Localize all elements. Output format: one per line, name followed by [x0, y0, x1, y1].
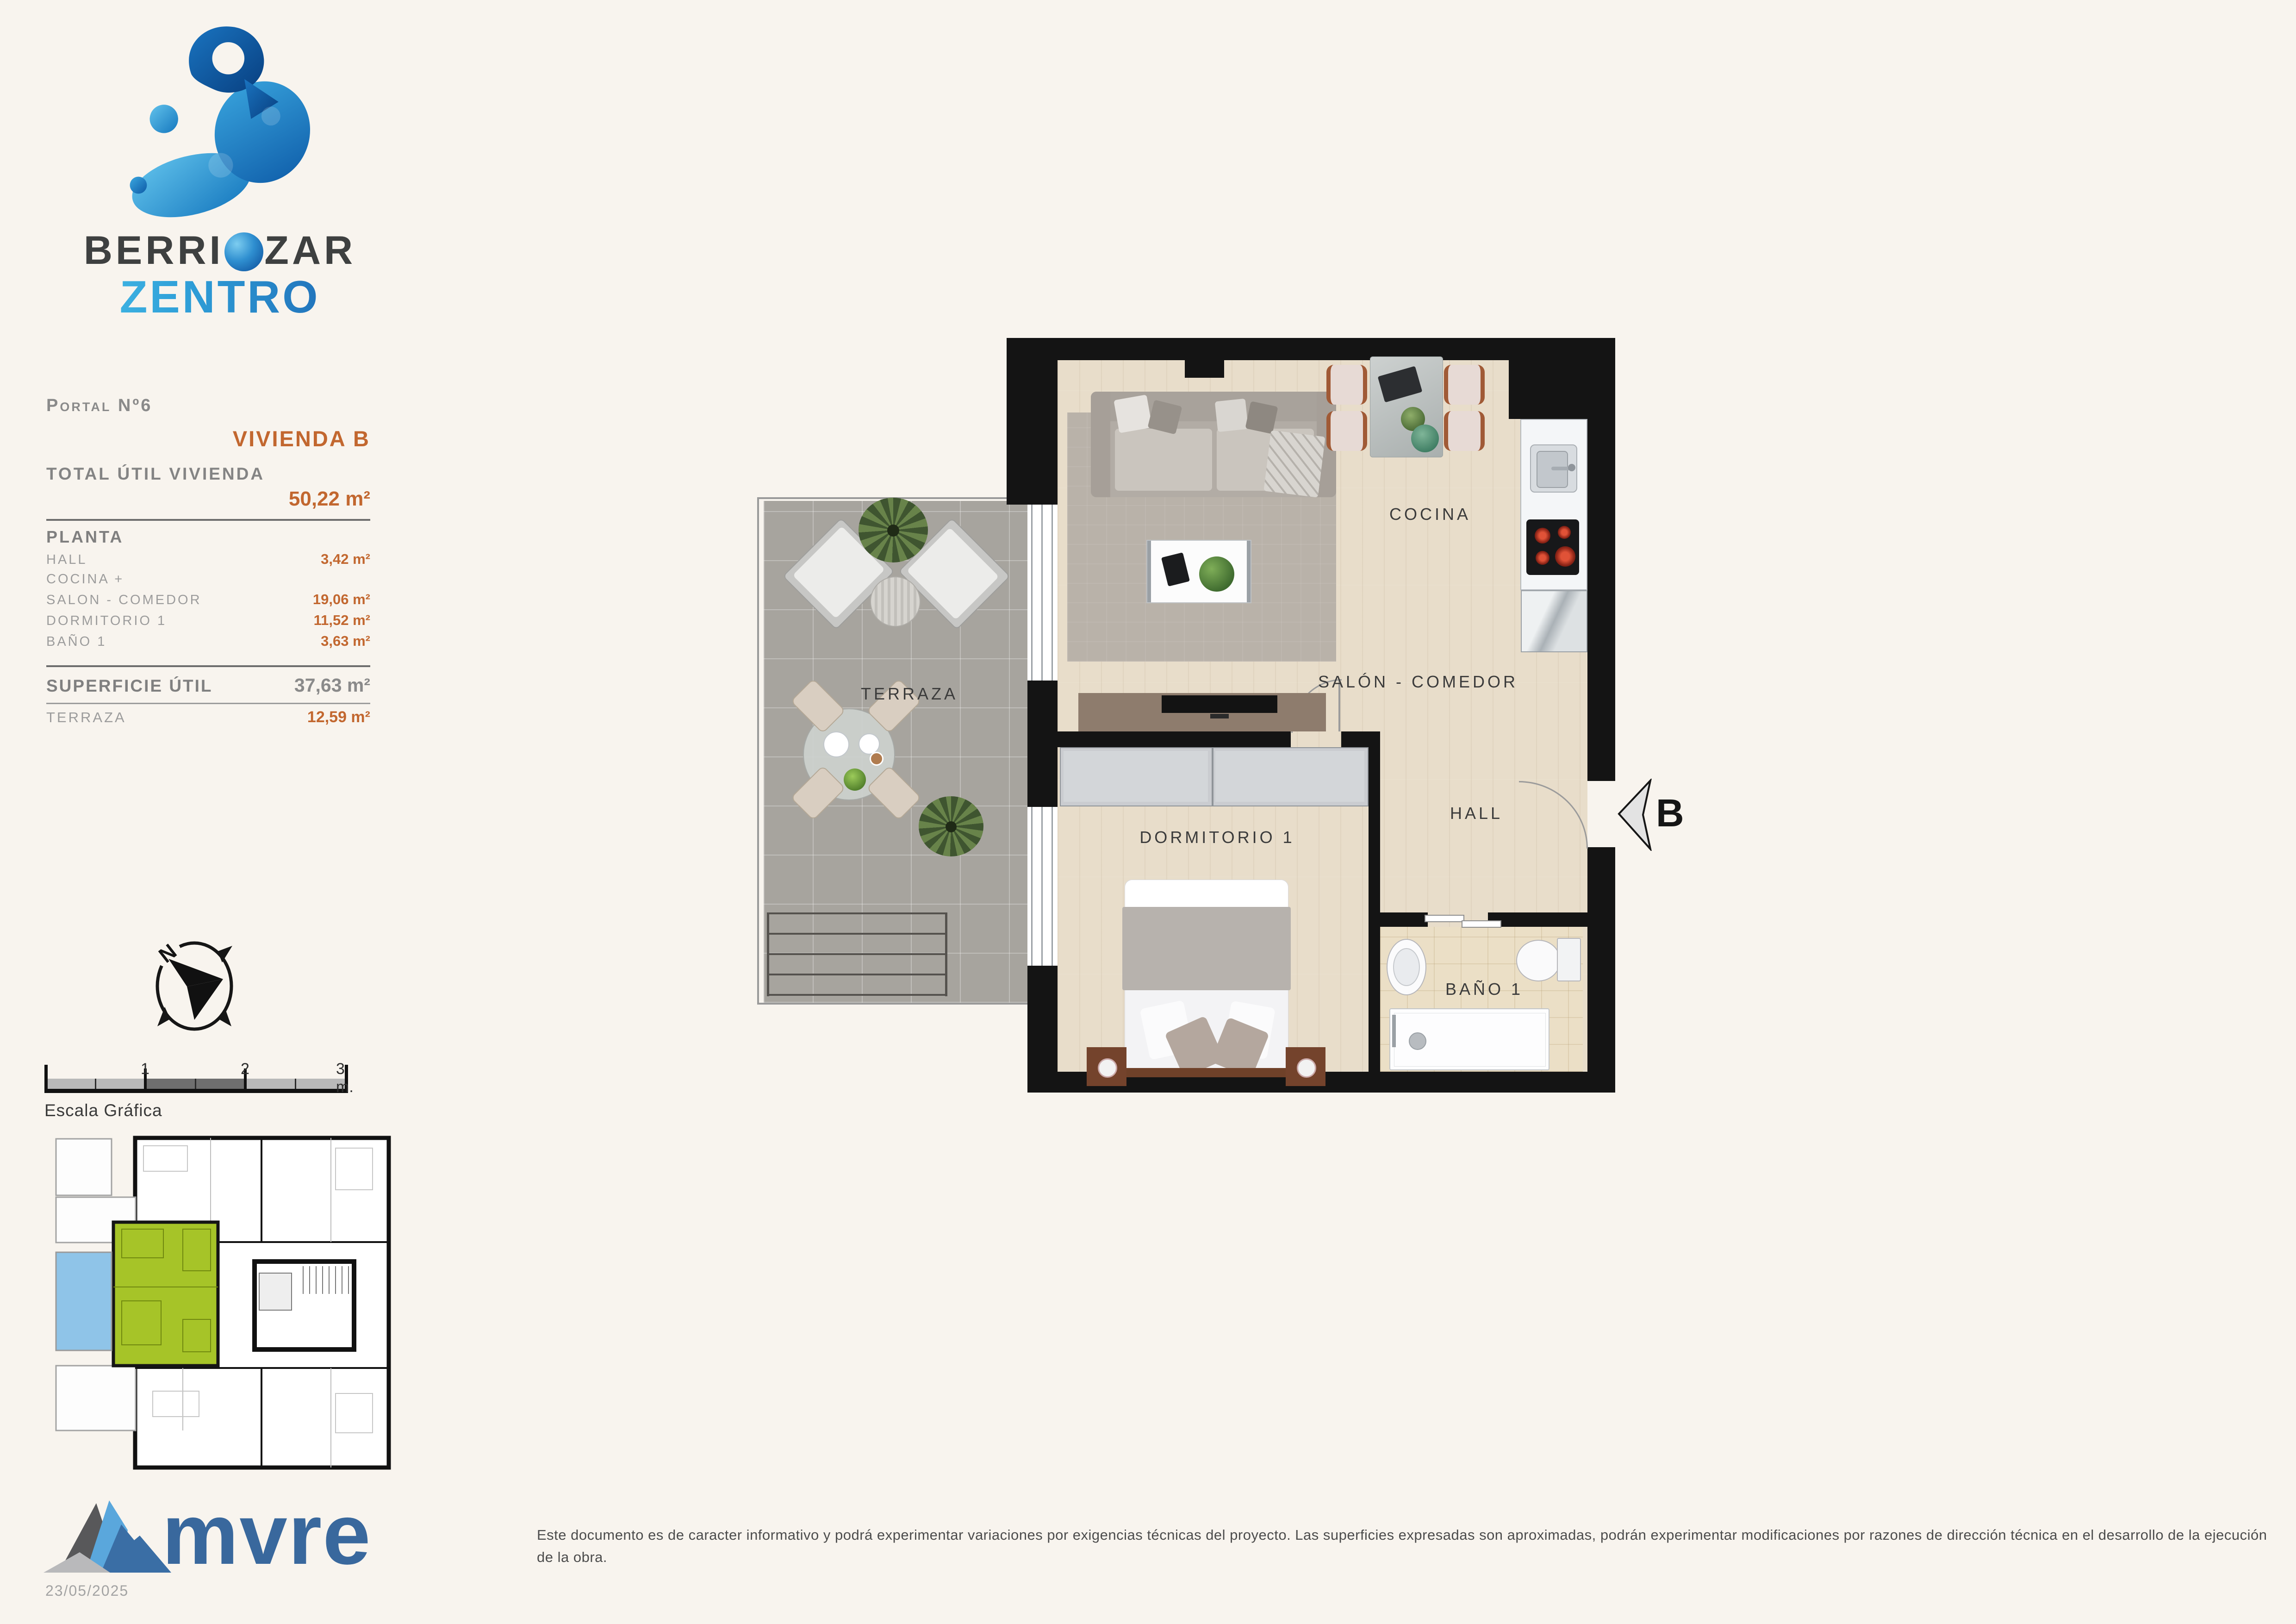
row-label: BAÑO 1: [46, 634, 106, 650]
table-plant: [1199, 556, 1234, 592]
bathroom-sliding-door: [1462, 920, 1501, 928]
wardrobe: [1060, 747, 1369, 806]
scale-label-3: 3 m.: [336, 1060, 359, 1096]
brand-splash-icon: [116, 19, 329, 227]
coffee-table-rail: [1247, 541, 1251, 602]
kitchen-sink: [1530, 444, 1577, 493]
wall: [1587, 338, 1615, 781]
entrance-chevron-icon: [1616, 779, 1653, 851]
dining-chair: [1444, 411, 1485, 451]
shower-drain: [1409, 1032, 1426, 1050]
area-row: SALON - COMEDOR19,06 m²: [46, 591, 370, 608]
terraza-value: 12,59 m²: [307, 708, 370, 726]
floorplan-sheet: BERRIZAR ZENTRO Portal Nº6 VIVIENDA B TO…: [0, 0, 2296, 1624]
shower-tray: [1389, 1008, 1549, 1070]
area-row: HALL3,42 m²: [46, 551, 370, 568]
highlighted-unit-b: [113, 1222, 218, 1366]
faucet-knob: [1568, 464, 1575, 471]
terrace-railing: [757, 1003, 1028, 1005]
divider: [46, 665, 370, 667]
row-label: SALON - COMEDOR: [46, 593, 202, 608]
bathroom-sink: [1387, 939, 1426, 995]
wall: [1380, 912, 1428, 927]
stove: [1526, 519, 1579, 575]
coffee-table: [1146, 540, 1251, 603]
brand-logo: [116, 19, 329, 227]
wall: [1058, 731, 1291, 747]
scale-tick: [44, 1065, 48, 1089]
unit-info-panel: Portal Nº6 VIVIENDA B TOTAL ÚTIL VIVIEND…: [46, 396, 370, 726]
entrance-opening: [1587, 781, 1615, 847]
wardrobe-door: [1064, 751, 1208, 802]
brand-name-post: ZAR: [264, 228, 356, 273]
entrance-letter: B: [1656, 791, 1684, 836]
window-frame-line: [1031, 807, 1033, 966]
wall: [1341, 731, 1380, 747]
tv: [1162, 695, 1277, 713]
row-value: 3,63 m²: [321, 633, 370, 650]
wall: [1027, 966, 1058, 1093]
wall: [1185, 360, 1224, 378]
divider: [46, 519, 370, 521]
window: [1027, 807, 1058, 966]
superficie-label: SUPERFICIE ÚTIL: [46, 676, 213, 696]
plant-pot: [887, 525, 899, 537]
window-frame-line: [1031, 505, 1033, 681]
toilet-tank: [1557, 938, 1581, 981]
divider: [46, 703, 370, 704]
room-label-hall: HALL: [1430, 804, 1523, 823]
nightstand-lamp: [1297, 1058, 1316, 1078]
scale-halftick: [195, 1079, 196, 1089]
coffee-cup: [870, 752, 884, 766]
terraza-row: TERRAZA12,59 m²: [46, 708, 370, 726]
nightstand-lamp: [1098, 1058, 1117, 1078]
key-plan-drawing: [44, 1134, 396, 1495]
window-frame-line: [1052, 807, 1053, 966]
dining-chair: [1326, 411, 1367, 451]
sofa: [1091, 392, 1336, 497]
nightstand: [1087, 1047, 1126, 1086]
laptop: [1378, 366, 1423, 403]
stove-burner: [1558, 526, 1571, 539]
shower-head-bar: [1392, 1015, 1396, 1047]
sofa-pillow: [1215, 399, 1249, 432]
wall: [1027, 338, 1611, 360]
brand-name: BERRIZAR: [51, 228, 389, 274]
sofa-pillow: [1114, 394, 1152, 433]
sofa-throw-blanket: [1263, 430, 1325, 497]
stove-burner: [1555, 546, 1575, 567]
bed-headboard: [1123, 1068, 1290, 1077]
row-label: DORMITORIO 1: [46, 613, 167, 629]
dining-table: [1370, 356, 1443, 457]
stove-burner: [1535, 528, 1550, 543]
wardrobe-divider: [1212, 748, 1213, 806]
scale-halftick: [95, 1079, 96, 1089]
wall: [1587, 847, 1615, 1093]
document-date: 23/05/2025: [45, 1582, 129, 1599]
area-row: DORMITORIO 111,52 m²: [46, 612, 370, 629]
room-label-salon: SALÓN - COMEDOR: [1288, 672, 1548, 692]
bed-blanket: [1122, 907, 1291, 990]
sofa-armrest: [1091, 392, 1110, 497]
kitchen-appliance: [1521, 590, 1587, 652]
row-value: 3,42 m²: [321, 551, 370, 568]
bed-sheet-fold: [1125, 880, 1288, 907]
tv-stand: [1210, 714, 1229, 718]
legal-disclaimer: Este documento es de caracter informativ…: [537, 1524, 2282, 1568]
scale-halftick: [295, 1079, 296, 1089]
total-util-value: 50,22 m²: [46, 487, 370, 511]
row-value: 19,06 m²: [313, 591, 370, 608]
wall: [1509, 360, 1587, 419]
terrace-side-table: [870, 576, 921, 627]
wall: [1369, 747, 1380, 1072]
bathroom-sink-bowl: [1393, 948, 1420, 986]
scale-caption: Escala Gráfica: [44, 1101, 162, 1120]
tv-sideboard: [1078, 693, 1326, 731]
room-label-cocina: COCINA: [1342, 505, 1518, 524]
salad-bowl: [844, 768, 866, 791]
mvre-logo-text: mvre: [162, 1485, 372, 1584]
window: [1027, 505, 1058, 681]
sofa-seat-cushion: [1115, 429, 1212, 491]
wardrobe-door: [1215, 751, 1364, 802]
tablet: [1161, 552, 1190, 587]
table-plant: [1411, 425, 1439, 452]
scale-baseline: [44, 1089, 348, 1093]
plant-pot: [946, 821, 957, 832]
terrace-railing: [757, 497, 759, 1005]
toilet-bowl: [1516, 940, 1561, 981]
row-label: HALL: [46, 552, 87, 568]
bed: [1125, 880, 1288, 1077]
scale-label-1: 1: [141, 1060, 149, 1078]
scale-label-2: 2: [241, 1060, 249, 1078]
room-label-bano: BAÑO 1: [1426, 980, 1542, 999]
key-plan: [44, 1134, 396, 1495]
room-label-dormitorio: DORMITORIO 1: [1120, 828, 1314, 847]
compass: N: [148, 933, 241, 1035]
dining-chair: [1326, 365, 1367, 405]
total-util-label: TOTAL ÚTIL VIVIENDA: [46, 464, 370, 484]
bathroom-sliding-door: [1425, 915, 1464, 922]
stove-burner: [1536, 551, 1549, 565]
dining-chair: [1444, 365, 1485, 405]
brand-name-pre: BERRI: [84, 228, 224, 273]
row-label: COCINA +: [46, 572, 124, 587]
wall: [1007, 338, 1058, 505]
terrace-plant: [919, 796, 983, 856]
terrace-pergola-rack: [767, 912, 947, 996]
window-frame-line: [1041, 505, 1043, 681]
brand-dot-icon: [224, 232, 263, 271]
room-label-terraza: TERRAZA: [840, 684, 979, 704]
superficie-value: 37,63 m²: [294, 675, 370, 696]
compass-icon: N: [148, 933, 241, 1035]
sofa-pillow: [1245, 401, 1278, 434]
window-frame-line: [1052, 505, 1053, 681]
area-row: COCINA +: [46, 572, 370, 587]
brand-subname: ZENTRO: [51, 271, 389, 323]
nightstand: [1286, 1047, 1325, 1086]
main-floor-plan: TERRAZA COCINA SALÓN - COMEDOR HALL DORM…: [754, 338, 1680, 1120]
area-row: BAÑO 13,63 m²: [46, 633, 370, 650]
superficie-row: SUPERFICIE ÚTIL37,63 m²: [46, 675, 370, 696]
unit-title: VIVIENDA B: [46, 426, 370, 451]
graphic-scale: 1 2 3 m. Escala Gráfica: [44, 1065, 359, 1125]
wall: [1027, 681, 1058, 807]
planta-label: PLANTA: [46, 527, 370, 547]
coffee-table-rail: [1147, 541, 1151, 602]
highlighted-terrace: [56, 1252, 112, 1350]
terrace-plant: [859, 498, 928, 562]
window-frame-line: [1041, 807, 1043, 966]
wall: [1488, 912, 1587, 927]
portal-title: Portal Nº6: [46, 396, 370, 416]
row-value: 11,52 m²: [314, 612, 370, 629]
plate: [823, 731, 849, 757]
terraza-label: TERRAZA: [46, 709, 126, 726]
